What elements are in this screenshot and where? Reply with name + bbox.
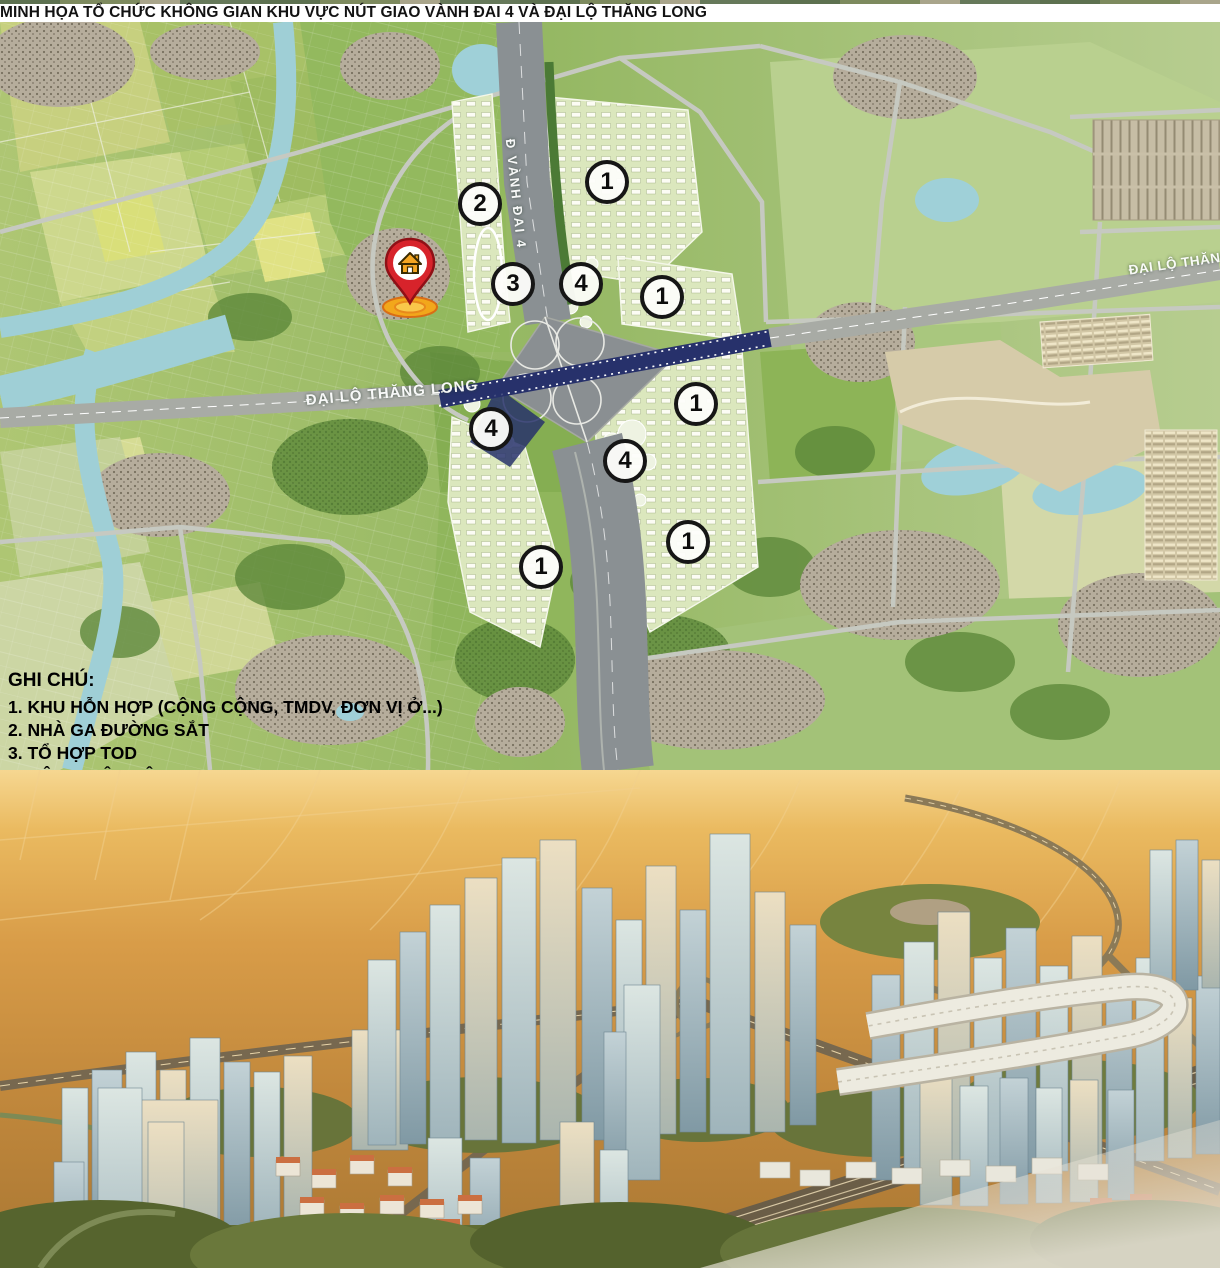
map-marker-4: 4 (559, 262, 603, 306)
location-pin-icon (378, 233, 442, 319)
page-title: MINH HỌA TỔ CHỨC KHÔNG GIAN KHU VỰC NÚT … (0, 4, 707, 22)
map-marker-3: 3 (491, 262, 535, 306)
legend-item: 2. NHÀ GA ĐƯỜNG SẮT (8, 719, 443, 742)
city-render-illustration (0, 770, 1220, 1268)
map-marker-1: 1 (519, 545, 563, 589)
map-marker-4: 4 (603, 439, 647, 483)
map-illustration (0, 22, 1220, 770)
map-marker-1: 1 (640, 275, 684, 319)
map-marker-2: 2 (458, 182, 502, 226)
city-render (0, 770, 1220, 1268)
map-marker-1: 1 (585, 160, 629, 204)
legend-list: 1. KHU HỖN HỢP (CỘNG CỘNG, TMDV, ĐƠN VỊ … (8, 696, 443, 770)
map-marker-4: 4 (469, 407, 513, 451)
urban-grid-block (1093, 120, 1220, 220)
master-plan-map: Đ VÀNH ĐAI 4ĐẠI LỘ THĂNG LONGĐẠI LỘ THĂN… (0, 22, 1220, 770)
legend-item: 1. KHU HỖN HỢP (CỘNG CỘNG, TMDV, ĐƠN VỊ … (8, 696, 443, 719)
page: MINH HỌA TỔ CHỨC KHÔNG GIAN KHU VỰC NÚT … (0, 0, 1220, 1268)
legend: GHI CHÚ: 1. KHU HỖN HỢP (CỘNG CỘNG, TMDV… (8, 670, 443, 770)
map-marker-1: 1 (674, 382, 718, 426)
legend-item: 4. CÔNG VIÊN CÂY XANH (8, 765, 443, 770)
title-bar: MINH HỌA TỔ CHỨC KHÔNG GIAN KHU VỰC NÚT … (0, 4, 1220, 22)
map-marker-1: 1 (666, 520, 710, 564)
legend-title: GHI CHÚ: (8, 670, 443, 692)
legend-item: 3. TỔ HỢP TOD (8, 742, 443, 765)
